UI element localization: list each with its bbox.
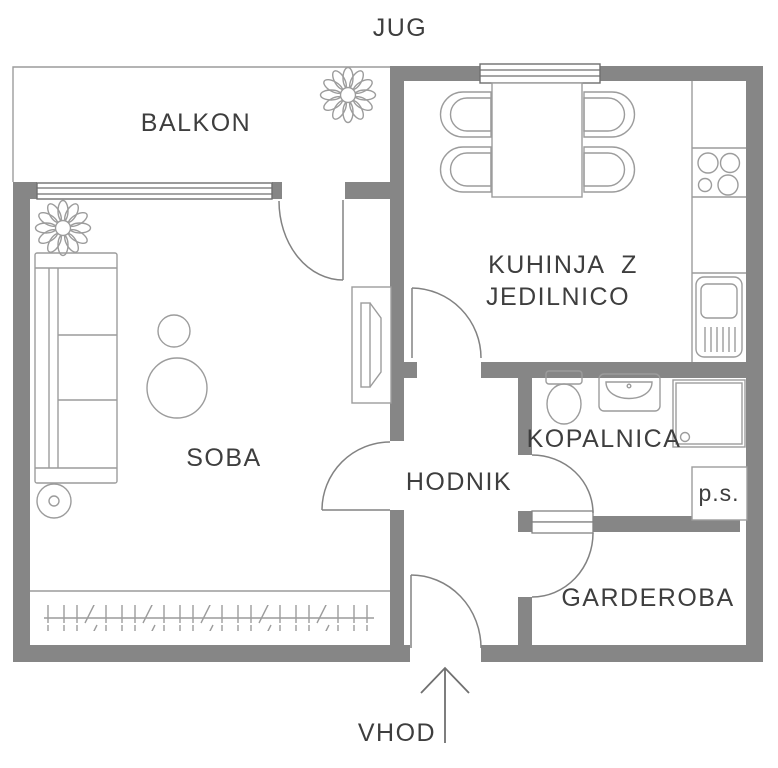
wall-balcony-door-block [345, 182, 404, 199]
coffee-table-large [147, 358, 207, 418]
floorplan: JUG BALKON KUHINJA Z JEDILNICO SOBA HODN… [0, 0, 778, 768]
door-balcony [279, 200, 343, 280]
plant-balcony [321, 68, 376, 123]
wall-window-block-left [13, 182, 37, 199]
washbasin [599, 374, 660, 411]
wall-soba-hallway-lower [390, 510, 404, 662]
kitchen-sink [696, 277, 742, 357]
label-bathroom: KOPALNICA [527, 425, 682, 453]
kitchen-counter [692, 81, 746, 362]
chair-bottom-right [584, 147, 635, 192]
wall-bottom-left [13, 645, 410, 662]
dining-table [492, 83, 582, 197]
wall-kitchen-bathroom [481, 362, 746, 378]
stove [698, 153, 740, 195]
wall-top-left-of-window [404, 66, 482, 81]
window-living-room [37, 183, 272, 199]
label-hallway: HODNIK [406, 468, 512, 496]
floorplan-drawing: JUG BALKON KUHINJA Z JEDILNICO SOBA HODN… [0, 0, 778, 768]
label-kitchen-line1: KUHINJA Z [488, 251, 638, 279]
floor-lamp [37, 484, 71, 518]
door-kitchen [412, 288, 481, 358]
wall-hallway-wardrobe [518, 597, 532, 662]
sofa [35, 253, 117, 483]
chair-bottom-left [441, 147, 492, 192]
wall-balcony-kitchen [390, 66, 404, 182]
wall-window-block-right [272, 182, 282, 199]
door-bathroom [532, 455, 593, 522]
door-living-room [322, 442, 390, 510]
chair-top-left [441, 92, 492, 137]
label-south: JUG [373, 14, 428, 42]
door-entrance [411, 575, 481, 648]
label-living-room: SOBA [186, 444, 261, 472]
chair-top-right [584, 92, 635, 137]
window-kitchen [480, 64, 600, 83]
wall-right [746, 66, 763, 662]
wall-soba-kitchen [390, 199, 404, 362]
wall-kitchen-door-stub [390, 362, 417, 378]
shower [673, 380, 745, 447]
tv-cabinet [352, 287, 391, 403]
radiator [30, 591, 390, 631]
plant-living-room [36, 201, 91, 256]
wall-soba-hallway-upper [390, 378, 404, 441]
wall-left [13, 182, 30, 662]
toilet [546, 371, 582, 424]
coffee-table-small [158, 315, 190, 347]
label-balcony: BALKON [141, 109, 251, 137]
label-kitchen-line2: JEDILNICO [486, 283, 630, 311]
label-wardrobe: GARDEROBA [561, 584, 734, 612]
wall-top-right-of-window [600, 66, 746, 81]
label-pantry-shaft: p.s. [698, 480, 739, 506]
label-entrance: VHOD [358, 719, 436, 747]
